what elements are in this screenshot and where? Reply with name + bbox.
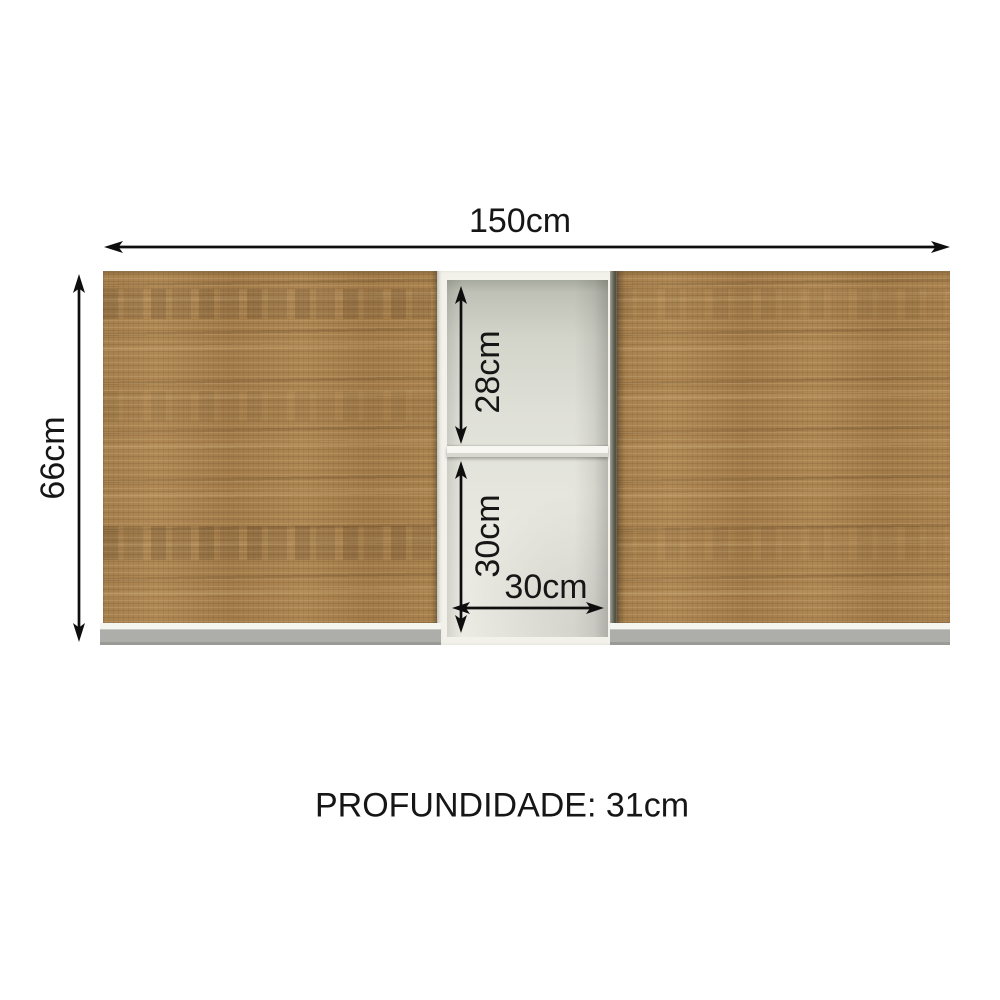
shelf-width-label: 30cm	[504, 570, 587, 604]
bottom-shelf-height-label: 30cm	[471, 494, 505, 577]
wood-grain-band	[617, 289, 950, 319]
wood-grain-band	[617, 526, 950, 560]
left-plinth	[100, 623, 441, 645]
wood-grain-band	[103, 526, 437, 560]
product-dimension-diagram: 150cm 66cm 28cm	[0, 0, 1000, 1000]
wood-grain-band	[103, 391, 437, 421]
door-edge-gap	[610, 271, 617, 624]
top-shelf-height-arrow	[454, 284, 468, 446]
width-dimension-arrow	[102, 240, 952, 254]
top-shelf-height-label: 28cm	[471, 330, 505, 413]
width-dimension-label: 150cm	[469, 204, 571, 238]
wood-grain-band	[103, 289, 437, 319]
right-plinth	[610, 623, 950, 645]
height-dimension-label: 66cm	[36, 416, 70, 499]
right-door	[617, 271, 950, 624]
left-door	[103, 271, 437, 624]
height-dimension-arrow	[72, 272, 86, 644]
shelf-divider	[447, 446, 608, 457]
depth-label: PROFUNDIDADE: 31cm	[315, 787, 689, 826]
shelf-width-arrow	[450, 601, 606, 615]
